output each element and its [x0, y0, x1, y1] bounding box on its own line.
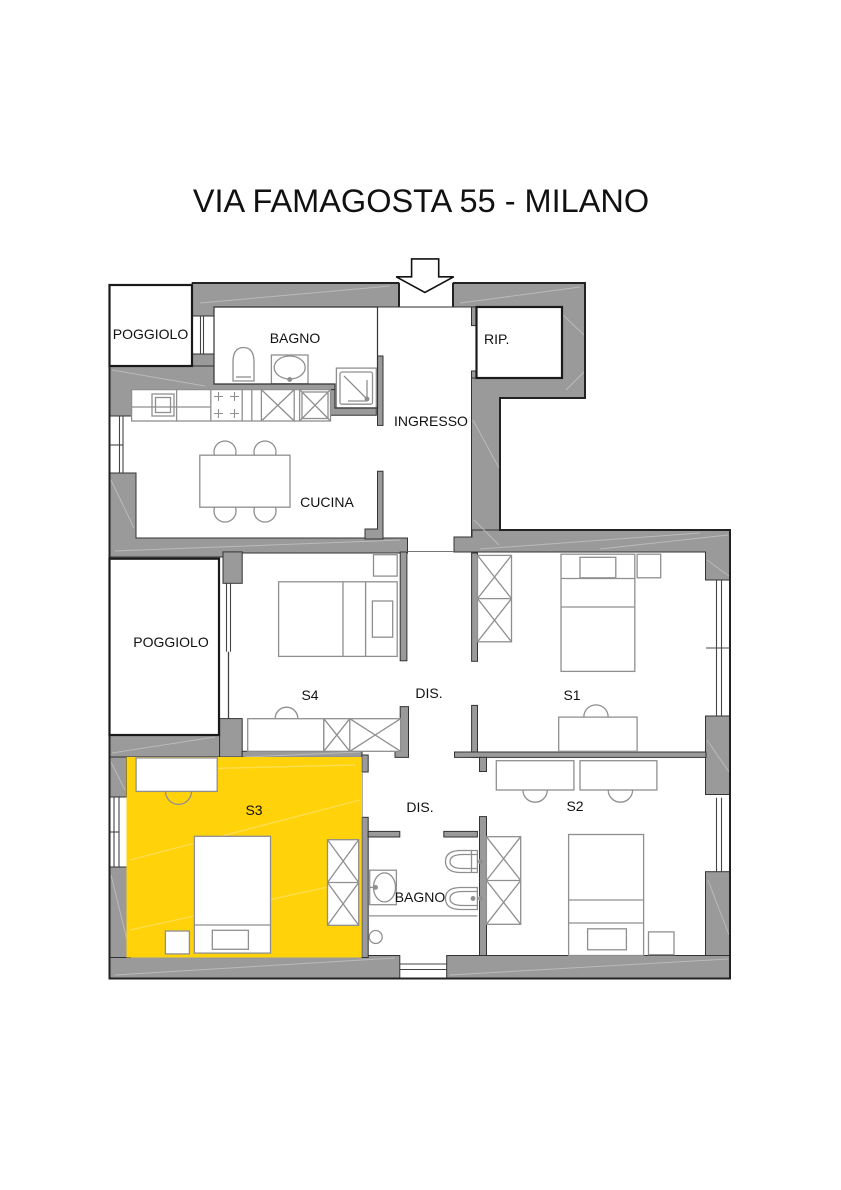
svg-text:S2: S2: [566, 798, 583, 814]
svg-text:BAGNO: BAGNO: [395, 889, 446, 905]
svg-text:S1: S1: [563, 687, 580, 703]
svg-text:DIS.: DIS.: [415, 685, 442, 701]
svg-text:RIP.: RIP.: [484, 331, 509, 347]
svg-text:POGGIOLO: POGGIOLO: [113, 326, 189, 342]
svg-text:S4: S4: [301, 687, 318, 703]
svg-text:VIA FAMAGOSTA 55 - MILANO: VIA FAMAGOSTA 55 - MILANO: [193, 183, 649, 219]
svg-text:DIS.: DIS.: [406, 799, 433, 815]
svg-text:BAGNO: BAGNO: [270, 330, 321, 346]
svg-text:S3: S3: [245, 802, 262, 818]
svg-text:POGGIOLO: POGGIOLO: [133, 634, 209, 650]
svg-text:CUCINA: CUCINA: [300, 494, 354, 510]
svg-text:INGRESSO: INGRESSO: [394, 413, 468, 429]
